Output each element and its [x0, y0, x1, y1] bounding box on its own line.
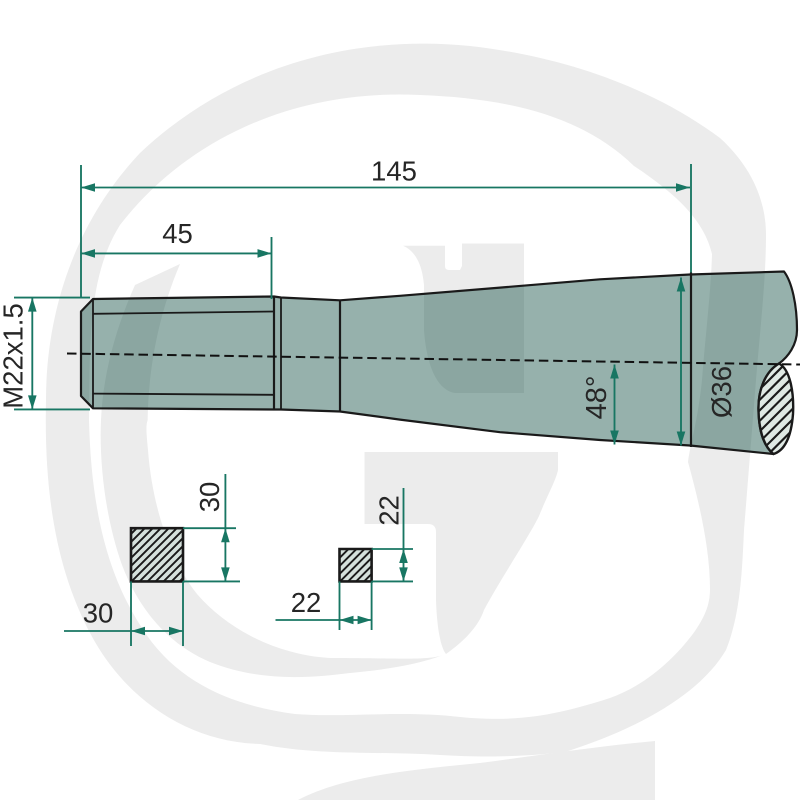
- svg-text:45: 45: [162, 218, 193, 249]
- svg-text:Ø36: Ø36: [706, 366, 737, 418]
- svg-text:30: 30: [194, 482, 225, 513]
- svg-text:22: 22: [291, 587, 322, 618]
- svg-text:M22x1.5: M22x1.5: [0, 303, 29, 408]
- svg-text:48°: 48°: [581, 376, 613, 420]
- svg-text:22: 22: [374, 495, 405, 526]
- svg-text:145: 145: [371, 156, 417, 187]
- svg-text:30: 30: [83, 598, 114, 629]
